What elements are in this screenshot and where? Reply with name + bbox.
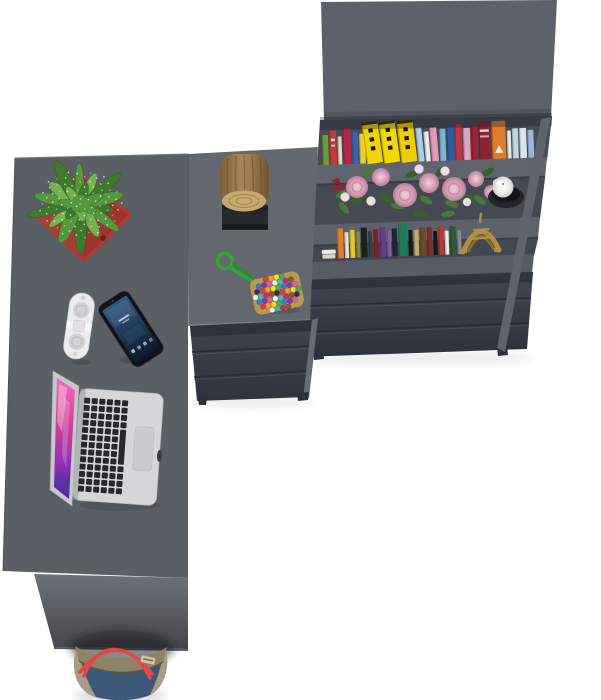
spine-glyph	[369, 137, 374, 142]
cactus-speckle	[71, 185, 73, 187]
cactus-speckle	[80, 198, 82, 200]
key	[113, 414, 119, 420]
cactus-speckle	[49, 187, 51, 189]
cactus-speckle	[121, 202, 123, 204]
spine-glyph	[387, 137, 392, 142]
cactus-speckle	[67, 207, 69, 209]
key	[120, 422, 126, 428]
speaker-clasp	[73, 320, 85, 332]
tower-foot-right	[494, 248, 500, 252]
book-spine	[527, 130, 534, 158]
book-spine	[392, 228, 398, 256]
key	[79, 471, 85, 477]
key	[101, 487, 107, 493]
key	[121, 408, 127, 414]
pedestal-foot-right	[297, 392, 309, 401]
key	[121, 415, 127, 421]
cactus-speckle	[46, 213, 48, 215]
book-spine	[427, 227, 433, 255]
key	[109, 473, 115, 479]
spine-title	[480, 129, 489, 132]
key	[110, 458, 116, 464]
key	[98, 413, 104, 419]
product-render-stage	[0, 0, 601, 700]
key	[98, 421, 104, 427]
cactus-speckle	[52, 201, 54, 203]
spine-glyph	[371, 146, 376, 151]
book-spine	[373, 229, 379, 257]
key	[89, 427, 95, 433]
cactus-speckle	[53, 214, 55, 216]
book-spine	[329, 131, 337, 165]
cactus-speckle	[115, 198, 117, 200]
key	[114, 400, 120, 406]
key	[102, 465, 108, 471]
log-tray-lip	[222, 224, 268, 230]
key	[97, 435, 103, 441]
key	[109, 480, 115, 486]
key	[91, 405, 97, 411]
book-spine	[379, 227, 386, 257]
cactus-speckle	[100, 212, 102, 214]
cactus-speckle	[101, 189, 103, 191]
cactus-speckle	[109, 189, 111, 191]
key	[113, 422, 119, 428]
candle-wax	[493, 177, 514, 198]
spine-title	[331, 145, 335, 147]
cactus-speckle	[106, 224, 108, 226]
key	[88, 449, 94, 455]
cactus-speckle	[88, 199, 90, 201]
rose	[442, 177, 466, 201]
key	[89, 435, 95, 441]
speaker-shadow	[71, 359, 91, 365]
key	[106, 406, 112, 412]
cactus-speckle	[99, 205, 101, 207]
cactus-speckle	[105, 218, 107, 220]
rose	[346, 176, 368, 198]
cactus-speckle	[77, 189, 79, 191]
book-spine	[349, 230, 355, 258]
spine-title	[331, 139, 335, 142]
cactus-speckle	[116, 191, 118, 193]
key	[79, 464, 85, 470]
book-spine	[454, 124, 462, 160]
book-spine	[352, 132, 359, 164]
book-spine	[337, 228, 344, 258]
key	[101, 480, 107, 486]
cactus-speckle	[97, 220, 99, 222]
drawer-pedestal	[188, 147, 318, 405]
key	[90, 420, 96, 426]
cactus-speckle	[98, 226, 100, 228]
bookcase-foot-left	[313, 350, 324, 360]
cactus-speckle	[93, 192, 95, 194]
cactus-speckle	[76, 206, 78, 208]
key	[111, 451, 117, 457]
book-spine	[519, 128, 527, 158]
cactus-speckle	[91, 207, 93, 209]
book-spine	[361, 227, 368, 257]
rose	[372, 168, 390, 186]
key	[85, 486, 91, 492]
key	[92, 398, 98, 404]
laptop-trackpad	[132, 426, 154, 471]
key	[86, 479, 92, 485]
cactus-speckle	[80, 230, 82, 232]
bookcase-top-panel	[321, 0, 557, 120]
key	[105, 421, 111, 427]
cactus-speckle	[100, 195, 102, 197]
cactus-speckle	[70, 202, 72, 204]
book-spine	[463, 128, 471, 160]
book-spine	[439, 129, 446, 161]
cactus-speckle	[70, 221, 72, 223]
pedestal-foot-left	[198, 398, 207, 405]
cactus-speckle	[57, 227, 59, 229]
cactus-speckle	[56, 184, 58, 186]
cactus-speckle	[83, 223, 85, 225]
cactus-speckle	[73, 178, 75, 180]
cactus-speckle	[84, 215, 86, 217]
key	[82, 420, 88, 426]
key	[102, 472, 108, 478]
accent-bloom	[332, 187, 337, 192]
key	[96, 450, 102, 456]
cactus-speckle	[79, 203, 81, 205]
cactus-speckle	[117, 209, 119, 211]
cactus-speckle	[48, 181, 50, 183]
cactus-speckle	[89, 181, 91, 183]
key	[95, 457, 101, 463]
key	[83, 412, 89, 418]
key	[93, 487, 99, 493]
cactus-speckle	[56, 178, 58, 180]
key	[80, 449, 86, 455]
key	[87, 457, 93, 463]
key	[103, 458, 109, 464]
key	[116, 488, 122, 494]
book-spine	[450, 226, 457, 254]
cactus-speckle	[67, 172, 69, 174]
key	[104, 443, 110, 449]
key	[80, 456, 86, 462]
cactus-speckle	[114, 220, 116, 222]
key	[99, 406, 105, 412]
cactus-speckle	[52, 193, 54, 195]
flat-book	[322, 250, 336, 255]
cactus-speckle	[67, 191, 69, 193]
key	[107, 399, 113, 405]
desk-bookcase-render	[0, 0, 601, 700]
cactus-speckle	[61, 219, 63, 221]
cactus-speckle	[108, 196, 110, 198]
spine-glyph	[404, 136, 409, 141]
cactus-speckle	[65, 177, 67, 179]
cactus-speckle	[90, 172, 92, 174]
bud	[463, 198, 471, 206]
cactus-speckle	[54, 221, 56, 223]
cactus-speckle	[96, 177, 98, 179]
book-spine	[438, 227, 444, 255]
spine-glyph	[405, 145, 410, 150]
cactus-speckle	[97, 232, 99, 234]
key	[111, 444, 117, 450]
cactus-speckle	[112, 214, 114, 216]
cactus-speckle	[90, 219, 92, 221]
cactus-speckle	[56, 208, 58, 210]
key	[114, 407, 120, 413]
cactus-speckle	[39, 210, 41, 212]
cactus-speckle	[79, 181, 81, 183]
key	[96, 443, 102, 449]
pot-handle-hole	[100, 235, 106, 241]
cactus-speckle	[46, 197, 48, 199]
cactus-speckle	[42, 192, 44, 194]
bud	[415, 165, 424, 174]
key	[86, 471, 92, 477]
bud	[441, 167, 450, 176]
rose	[393, 183, 417, 207]
rose	[419, 173, 439, 193]
bud	[341, 193, 350, 202]
cactus-speckle	[107, 209, 109, 211]
cactus-speckle	[93, 186, 95, 188]
cactus-speckle	[85, 193, 87, 195]
key	[81, 442, 87, 448]
key	[112, 429, 118, 435]
accent-bloom	[334, 178, 340, 184]
cactus-speckle	[69, 230, 71, 232]
bud	[367, 197, 376, 206]
key	[84, 398, 90, 404]
key	[122, 400, 128, 406]
cactus-speckle	[76, 212, 78, 214]
cactus-speckle	[74, 195, 76, 197]
cactus-speckle	[58, 198, 60, 200]
key	[93, 479, 99, 485]
cactus-speckle	[76, 234, 78, 236]
key	[91, 413, 97, 419]
cactus-speckle	[100, 183, 102, 185]
key	[87, 464, 93, 470]
key	[103, 450, 109, 456]
key	[95, 465, 101, 471]
cactus-speckle	[74, 226, 76, 228]
key	[94, 472, 100, 478]
book-spine	[444, 231, 449, 255]
key	[117, 474, 123, 480]
cactus-speckle	[70, 214, 72, 216]
cactus-speckle	[112, 205, 114, 207]
cactus-speckle	[46, 220, 48, 222]
cactus-speckle	[107, 182, 109, 184]
rose	[468, 171, 484, 187]
cactus-speckle	[95, 200, 97, 202]
cactus-speckle	[62, 233, 64, 235]
flat-book	[322, 254, 335, 259]
book-spine	[413, 230, 419, 256]
key	[116, 481, 122, 487]
cactus-speckle	[88, 232, 90, 234]
cactus-speckle	[84, 186, 86, 188]
cactus-speckle	[103, 176, 105, 178]
key	[83, 405, 89, 411]
book-spine	[342, 128, 351, 164]
cactus-speckle	[48, 206, 50, 208]
book-spine	[322, 135, 329, 165]
cactus-speckle	[90, 226, 92, 228]
cactus-speckle	[59, 190, 61, 192]
key	[78, 486, 84, 492]
key	[104, 436, 110, 442]
cactus-speckle	[84, 208, 86, 210]
cactus-speckle	[66, 197, 68, 199]
cactus-speckle	[84, 176, 86, 178]
book-spine	[398, 224, 408, 256]
key	[99, 399, 105, 405]
book-spine	[433, 231, 438, 255]
tower-spire	[480, 214, 481, 222]
book-spine	[420, 227, 427, 255]
cactus-speckle	[76, 173, 78, 175]
cactus-speckle	[93, 213, 95, 215]
key	[97, 428, 103, 434]
cactus-speckle	[62, 213, 64, 215]
laptop-deck-group	[72, 388, 166, 506]
key	[78, 478, 84, 484]
key	[110, 466, 116, 472]
key	[88, 442, 94, 448]
key	[105, 428, 111, 434]
bookcase	[302, 0, 557, 360]
spine-glyph	[388, 145, 393, 150]
cactus-speckle	[42, 203, 44, 205]
spine-title	[480, 135, 489, 137]
desk	[3, 154, 188, 700]
key	[82, 427, 88, 433]
cactus-speckle	[64, 225, 66, 227]
tower-deck-2	[473, 229, 489, 230]
tower-foot-left	[461, 249, 467, 253]
book-spine	[512, 128, 519, 158]
cactus-speckle	[61, 204, 63, 206]
key	[81, 434, 87, 440]
key	[108, 488, 114, 494]
log-decoration	[220, 154, 269, 230]
accent-bloom	[338, 184, 344, 190]
cactus-speckle	[105, 201, 107, 203]
key	[117, 466, 123, 472]
book-spine	[446, 126, 454, 160]
key	[106, 414, 112, 420]
candle-wick	[502, 183, 504, 185]
cactus-speckle	[84, 237, 86, 239]
key	[112, 436, 118, 442]
cactus-speckle	[78, 219, 80, 221]
book-spine	[471, 126, 478, 160]
cactus-speckle	[64, 184, 66, 186]
